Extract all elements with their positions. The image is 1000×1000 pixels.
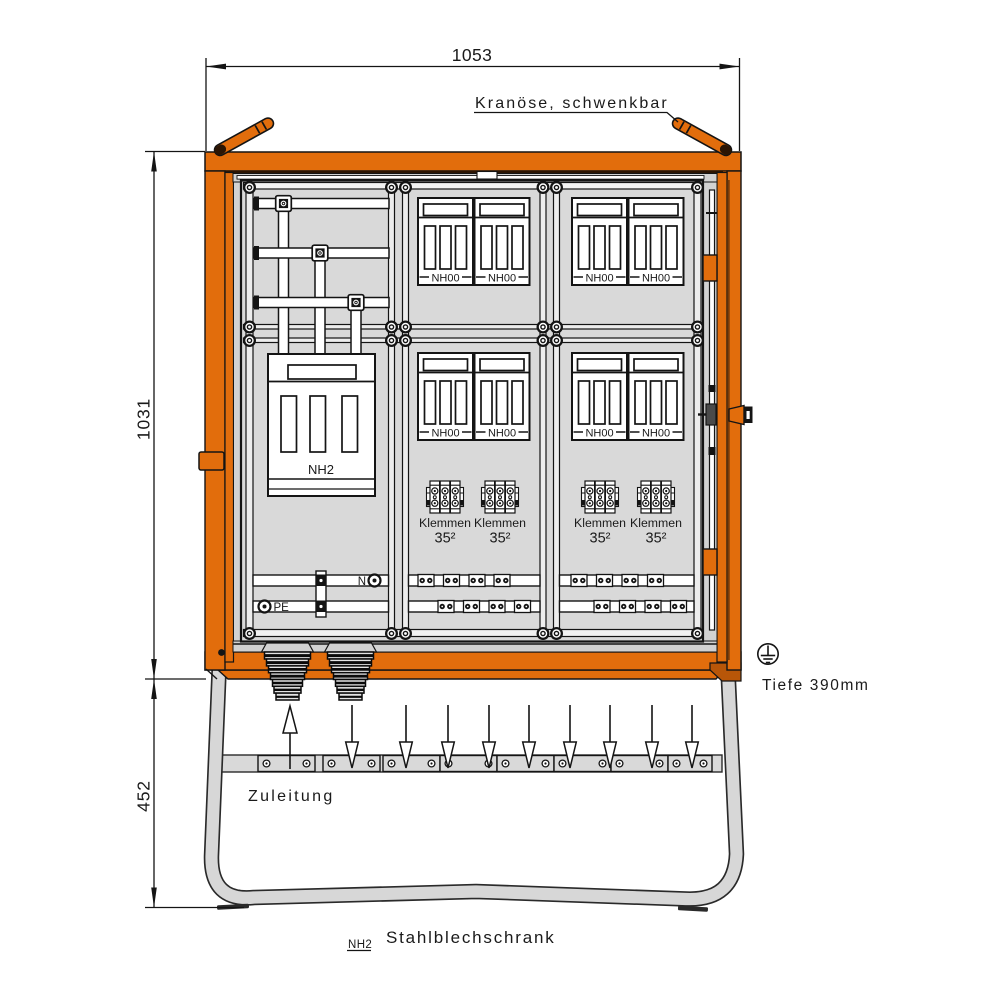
svg-text:Klemmen: Klemmen xyxy=(419,516,471,530)
svg-text:Zuleitung: Zuleitung xyxy=(248,788,335,805)
svg-text:Tiefe 390mm: Tiefe 390mm xyxy=(762,677,869,694)
svg-text:PE: PE xyxy=(274,602,290,614)
svg-text:35²: 35² xyxy=(590,531,611,547)
svg-text:Klemmen: Klemmen xyxy=(630,516,682,530)
svg-text:NH2: NH2 xyxy=(308,462,334,477)
svg-text:35²: 35² xyxy=(435,531,456,547)
svg-text:Klemmen: Klemmen xyxy=(474,516,526,530)
svg-text:NH2: NH2 xyxy=(348,939,372,951)
svg-text:35²: 35² xyxy=(490,531,511,547)
svg-text:1053: 1053 xyxy=(452,45,493,65)
svg-text:N: N xyxy=(358,576,366,588)
svg-text:1031: 1031 xyxy=(134,398,154,440)
svg-text:Klemmen: Klemmen xyxy=(574,516,626,530)
svg-text:Stahlblechschrank: Stahlblechschrank xyxy=(386,928,556,947)
svg-text:35²: 35² xyxy=(646,531,667,547)
svg-text:452: 452 xyxy=(134,780,154,812)
svg-text:Kranöse, schwenkbar: Kranöse, schwenkbar xyxy=(475,95,669,112)
